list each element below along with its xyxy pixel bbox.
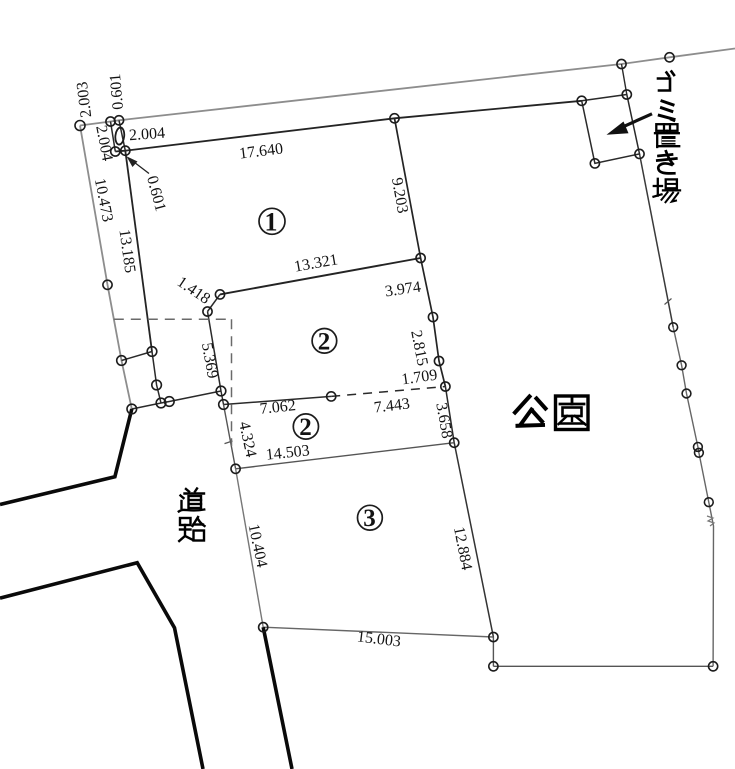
svg-text:2.004: 2.004 bbox=[129, 125, 166, 144]
svg-text:3: 3 bbox=[363, 505, 376, 532]
svg-text:2: 2 bbox=[318, 328, 331, 355]
svg-text:2: 2 bbox=[299, 414, 312, 441]
svg-text:0.601: 0.601 bbox=[107, 73, 127, 110]
svg-text:1: 1 bbox=[265, 207, 278, 236]
